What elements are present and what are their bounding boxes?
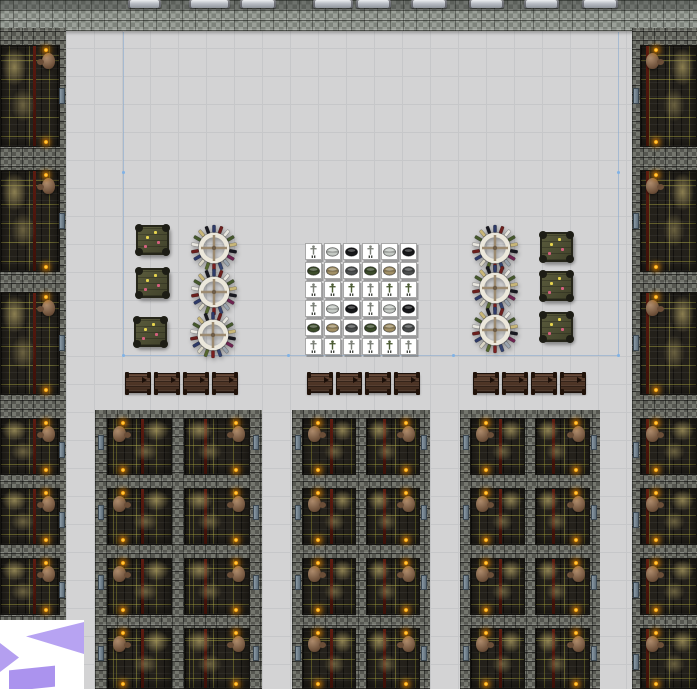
bedroom-cell[interactable] [107,558,172,615]
dust-patch [671,420,694,441]
torch-light [121,468,125,472]
clay-pot-handle [657,306,664,312]
storage-tile-stand-gray[interactable] [305,338,322,355]
table-item-dot [550,282,553,285]
torch-light [44,608,48,612]
bedroom-cell[interactable] [535,488,590,545]
zone-marker-dot [122,354,125,357]
storage-tile-helm-gray[interactable] [400,262,417,279]
cell-door[interactable] [591,435,597,450]
cell-door[interactable] [295,575,301,590]
clay-pot-handle [37,432,44,438]
dust-patch [663,442,685,461]
storage-tile-stand-gray[interactable] [305,300,322,317]
torch-light [654,468,658,472]
cell-block [460,410,600,689]
dust-patch [368,630,390,652]
cell-door[interactable] [421,435,427,450]
bench-post [531,389,535,395]
table-item-dot [142,337,145,340]
cell-door[interactable] [463,575,469,590]
storage-tile-helm-black[interactable] [400,300,417,317]
storage-tile-helm-gray[interactable] [400,319,417,336]
table-corner-knob [566,270,574,278]
bedroom-cell[interactable] [302,488,356,545]
dust-patch [492,442,513,461]
bench-post [307,389,311,395]
bedroom-cell[interactable] [0,488,60,545]
bench[interactable] [183,373,209,393]
storage-tile-helm-green[interactable] [305,262,322,279]
zone-marker-dot [617,171,620,174]
dust-patch [671,490,694,511]
round-table[interactable] [190,224,238,272]
table-item-dot [146,279,149,282]
bedroom-cell[interactable] [0,418,60,475]
bench[interactable] [473,373,499,393]
table-corner-knob [162,224,170,232]
bedroom-cell[interactable] [107,488,172,545]
dust-patch [197,654,223,674]
bench-post [473,372,477,378]
cell-door[interactable] [253,435,259,450]
bedroom-cell[interactable] [184,418,250,475]
torch-light [484,682,488,686]
dust-patch [186,630,213,652]
clay-pot-handle [567,572,574,578]
dust-patch [663,335,685,369]
storage-tile-stand-gray[interactable] [305,243,322,260]
metal-rail-beam [411,0,447,8]
dust-patch [197,442,223,461]
square-table[interactable] [136,225,169,255]
torch-light [121,682,125,686]
bench-post [212,372,216,378]
torch-light [44,140,48,144]
bench-post [358,389,362,395]
bedroom-cell[interactable] [0,292,60,395]
bedroom-cell[interactable] [535,558,590,615]
bedroom-cell[interactable] [302,418,356,475]
storage-tile-stand-gray[interactable] [400,338,417,355]
torch-light [574,538,578,542]
cell-block [95,410,262,689]
bench-post [205,372,209,378]
bedroom-cell[interactable] [0,45,60,147]
table-corner-knob [160,340,168,348]
storage-shelf-area [305,243,419,357]
bench-post [147,389,151,395]
table-item-dot [155,333,158,336]
table-item-dot [157,284,160,287]
stone-wall-top [0,0,697,31]
bedroom-cell[interactable] [535,418,590,475]
dust-patch [500,420,522,441]
round-table[interactable] [189,311,237,359]
bedroom-cell[interactable] [107,418,172,475]
cell-door[interactable] [463,505,469,520]
bedroom-cell[interactable] [302,628,356,689]
torch-light [316,468,320,472]
torch-light [234,608,238,612]
dust-patch [11,88,34,122]
bench[interactable] [336,373,362,393]
cell-door[interactable] [59,512,65,528]
cell-door[interactable] [59,335,65,351]
bench-post [234,389,238,395]
bedroom-cell[interactable] [640,292,697,395]
bench-post [125,389,129,395]
table-corner-knob [566,335,574,343]
cell-door[interactable] [295,505,301,520]
bedroom-cell[interactable] [470,488,525,545]
table-item-dot [548,252,551,255]
bedroom-cell[interactable] [184,558,250,615]
dust-patch [376,442,397,461]
bedroom-cell[interactable] [640,45,697,147]
storage-tile-helm-tan[interactable] [324,319,341,336]
torch-light [484,491,488,495]
bedroom-cell[interactable] [640,170,697,272]
zone-marker-line-left [123,32,124,355]
torch-light [574,491,578,495]
bench[interactable] [531,373,557,393]
bench-post [365,389,369,395]
storage-tile-helm-green[interactable] [305,319,322,336]
logo-overlay[interactable] [0,620,84,689]
cell-door[interactable] [59,88,65,104]
storage-tile-helm-black[interactable] [343,300,360,317]
storage-tile-helm-black[interactable] [343,243,360,260]
dust-patch [2,295,26,333]
cell-door[interactable] [463,435,469,450]
storage-tile-stand-gray[interactable] [362,243,379,260]
bedroom-cell[interactable] [0,170,60,272]
cell-door[interactable] [633,88,639,104]
bench-post [154,389,158,395]
cell-door[interactable] [591,646,597,661]
cell-door[interactable] [633,213,639,229]
table-corner-knob [135,267,143,275]
zone-marker-dot [287,354,290,357]
bench-arrow-mark [548,377,553,383]
table-item-dot [152,323,155,326]
clay-pot-handle [487,502,494,508]
table-corner-knob [133,340,141,348]
bench[interactable] [212,373,238,393]
bench[interactable] [394,373,420,393]
clay-pot-handle [319,642,326,648]
table-corner-knob [539,255,547,263]
bench-post [524,389,528,395]
dust-patch [368,560,390,581]
torch-light [234,631,238,635]
bench-arrow-mark [324,377,329,383]
bedroom-cell[interactable] [302,558,356,615]
torch-light [574,631,578,635]
cell-door[interactable] [253,575,259,590]
table-item-dot [561,328,564,331]
storage-tile-helm-tan[interactable] [381,319,398,336]
cell-door[interactable] [59,582,65,598]
bedroom-cell[interactable] [640,558,697,615]
bench-arrow-mark [577,377,582,383]
torch-light [234,421,238,425]
table-item-dot [550,243,553,246]
storage-tile-helm-tan[interactable] [324,262,341,279]
storage-tile-stand-green[interactable] [324,338,341,355]
clay-pot-handle [37,306,44,312]
torch-light [654,265,658,269]
bedroom-cell[interactable] [640,488,697,545]
storage-tile-stand-gray[interactable] [305,281,322,298]
bench-post [524,372,528,378]
storage-tile-stand-gray[interactable] [343,338,360,355]
zone-marker-dot [122,171,125,174]
torch-light [316,491,320,495]
torch-light [44,538,48,542]
cell-door[interactable] [633,335,639,351]
metal-rail-beam [240,0,276,8]
bench-post [336,372,340,378]
clay-pot-handle [397,642,404,648]
square-table[interactable] [540,232,573,262]
bench-post [531,372,535,378]
storage-tile-stand-green[interactable] [381,338,398,355]
bench-post [329,372,333,378]
table-corner-knob [133,316,141,324]
cell-door[interactable] [633,654,639,670]
torch-light [121,608,125,612]
cell-door[interactable] [633,512,639,528]
table-item-dot [561,287,564,290]
metal-rail-beam [582,0,618,8]
torch-light [654,140,658,144]
cell-door[interactable] [295,435,301,450]
dust-patch [663,88,685,122]
torch-light [404,491,408,495]
cell-door[interactable] [591,575,597,590]
dust-patch [500,560,522,581]
torch-light [484,538,488,542]
torch-light [121,491,125,495]
purple-square-icon [9,666,55,689]
storage-tile-stand-green[interactable] [324,281,341,298]
torch-light [484,631,488,635]
cell-door[interactable] [59,442,65,458]
dust-patch [11,442,34,461]
cell-door[interactable] [59,213,65,229]
torch-light [316,561,320,565]
torch-light [404,561,408,565]
table-item-dot [548,291,551,294]
bedroom-cell[interactable] [366,418,420,475]
bench[interactable] [560,373,586,393]
bench-post [495,389,499,395]
bench-post [358,372,362,378]
table-item-dot [144,328,147,331]
round-table[interactable] [190,268,238,316]
bedroom-cell[interactable] [366,558,420,615]
torch-light [654,295,658,299]
dust-patch [663,582,685,601]
bench[interactable] [154,373,180,393]
torch-light [121,538,125,542]
bench-arrow-mark [519,377,524,383]
cell-door[interactable] [421,575,427,590]
torch-light [316,682,320,686]
clay-pot-handle [37,59,44,65]
bedroom-cell[interactable] [535,628,590,689]
bench-arrow-mark [382,377,387,383]
bench[interactable] [125,373,151,393]
square-table[interactable] [540,271,573,301]
cell-door[interactable] [253,646,259,661]
storage-tile-stand-gray[interactable] [362,338,379,355]
cell-door[interactable] [591,505,597,520]
bedroom-cell[interactable] [366,488,420,545]
storage-tile-helm-tan[interactable] [381,262,398,279]
cell-door[interactable] [421,646,427,661]
cell-door[interactable] [98,646,104,661]
dust-patch [663,512,685,531]
table-corner-knob [162,291,170,299]
dust-patch [197,512,223,531]
torch-light [484,561,488,565]
bedroom-cell[interactable] [184,628,250,689]
clay-pot-handle [124,502,131,508]
bench-post [553,372,557,378]
cell-door[interactable] [98,575,104,590]
clay-pot-handle [37,502,44,508]
bedroom-cell[interactable] [470,418,525,475]
bedroom-cell[interactable] [366,628,420,689]
cell-door[interactable] [98,505,104,520]
clay-pot-handle [124,572,131,578]
dust-patch [492,582,513,601]
dust-patch [143,560,169,581]
clay-pot-handle [487,572,494,578]
clay-pot-handle [227,502,234,508]
dust-patch [500,490,522,511]
storage-tile-stand-green[interactable] [381,281,398,298]
clay-pot-handle [657,642,664,648]
table-corner-knob [160,316,168,324]
zone-marker-dot [617,354,620,357]
dust-patch [11,582,34,601]
cell-door[interactable] [633,442,639,458]
table-corner-knob [135,248,143,256]
bedroom-cell[interactable] [640,628,697,689]
dust-patch [376,512,397,531]
round-table[interactable] [471,264,519,312]
table-item-dot [561,248,564,251]
table-item-dot [550,323,553,326]
dust-patch [332,560,354,581]
bedroom-cell[interactable] [107,628,172,689]
dust-patch [663,654,685,674]
torch-light [234,561,238,565]
clay-pot-handle [319,432,326,438]
torch-light [44,491,48,495]
table-corner-knob [539,231,547,239]
storage-tile-helm-silver[interactable] [324,243,341,260]
bedroom-cell[interactable] [640,418,697,475]
bench[interactable] [365,373,391,393]
dust-patch [376,582,397,601]
cell-door[interactable] [421,505,427,520]
cell-door[interactable] [295,646,301,661]
torch-light [404,682,408,686]
storage-tile-helm-green[interactable] [362,319,379,336]
storage-tile-helm-silver[interactable] [381,300,398,317]
bedroom-cell[interactable] [470,558,525,615]
zone-marker-dot [452,354,455,357]
round-table[interactable] [471,306,519,354]
clay-pot-handle [319,572,326,578]
game-map-viewport[interactable] [0,0,697,689]
dust-patch [186,420,213,441]
clay-pot-handle [567,502,574,508]
storage-tile-helm-black[interactable] [400,243,417,260]
metal-rail-beam [524,0,559,8]
square-table[interactable] [136,268,169,298]
square-table[interactable] [540,312,573,342]
dust-patch [492,654,513,674]
dust-patch [11,213,34,247]
bench[interactable] [502,373,528,393]
dust-patch [2,560,26,581]
storage-tile-helm-silver[interactable] [381,243,398,260]
bedroom-cell[interactable] [184,488,250,545]
storage-tile-helm-gray[interactable] [343,262,360,279]
storage-tile-stand-green[interactable] [400,281,417,298]
dust-patch [2,173,26,211]
storage-tile-helm-green[interactable] [362,262,379,279]
table-item-dot [154,231,157,234]
dust-patch [671,630,694,652]
table-item-dot [144,288,147,291]
cell-block [292,410,430,689]
square-table[interactable] [134,317,167,347]
metal-rail-beam [313,0,353,8]
cell-door[interactable] [463,646,469,661]
dust-patch [368,490,390,511]
storage-tile-helm-gray[interactable] [343,319,360,336]
storage-tile-stand-gray[interactable] [362,300,379,317]
storage-tile-helm-silver[interactable] [324,300,341,317]
table-corner-knob [566,255,574,263]
torch-light [121,631,125,635]
dust-patch [197,582,223,601]
torch-light [654,388,658,392]
bedroom-cell[interactable] [0,558,60,615]
storage-tile-stand-green[interactable] [343,281,360,298]
cell-door[interactable] [633,582,639,598]
clay-pot-handle [487,432,494,438]
storage-tile-stand-gray[interactable] [362,281,379,298]
clay-pot-handle [397,432,404,438]
torch-light [484,468,488,472]
cell-door[interactable] [253,505,259,520]
torch-light [316,538,320,542]
purple-triangle-small-icon [0,643,19,672]
bench-post [183,389,187,395]
dust-patch [324,512,345,531]
bench[interactable] [307,373,333,393]
cell-door[interactable] [98,435,104,450]
bedroom-cell[interactable] [470,628,525,689]
